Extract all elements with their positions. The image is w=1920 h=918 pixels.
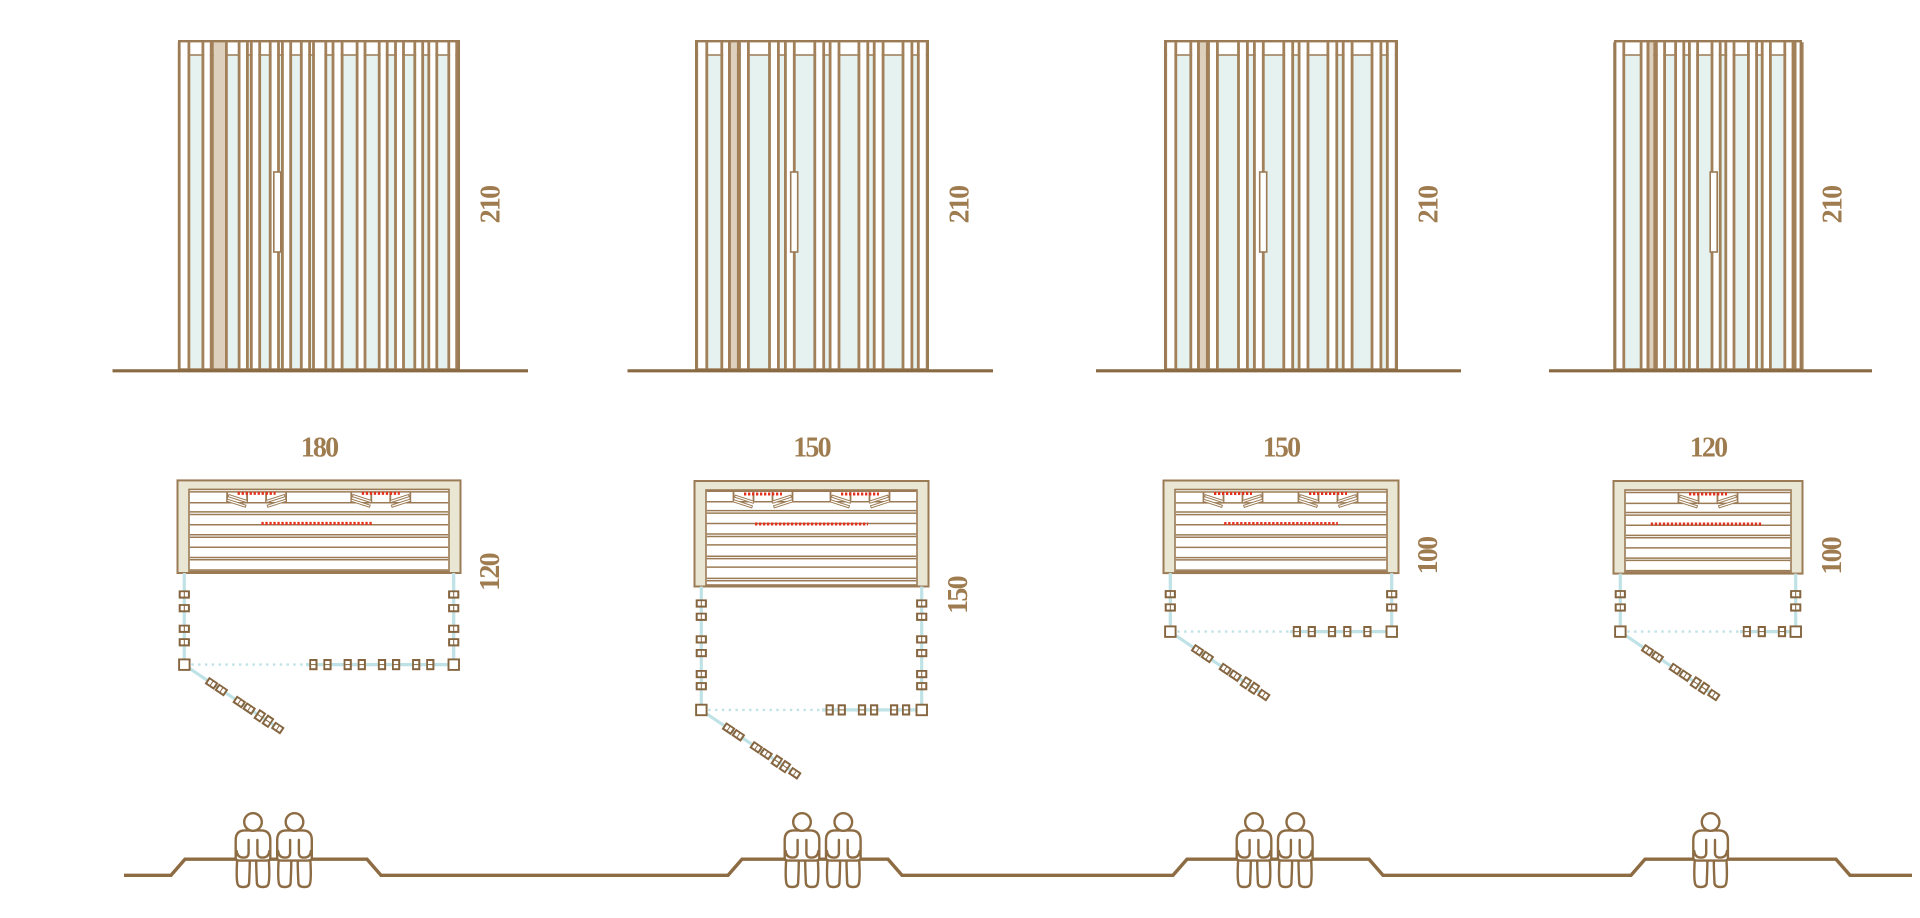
svg-text:210: 210 xyxy=(1818,186,1849,223)
svg-text:210: 210 xyxy=(1414,186,1445,223)
svg-text:100: 100 xyxy=(1817,537,1848,574)
svg-text:210: 210 xyxy=(945,186,976,223)
svg-text:150: 150 xyxy=(1263,433,1300,464)
svg-text:120: 120 xyxy=(475,553,506,590)
svg-text:150: 150 xyxy=(793,433,830,464)
svg-text:100: 100 xyxy=(1413,537,1444,574)
svg-text:210: 210 xyxy=(476,186,507,223)
svg-text:180: 180 xyxy=(301,433,338,464)
svg-text:150: 150 xyxy=(943,576,974,613)
svg-text:120: 120 xyxy=(1690,433,1727,464)
